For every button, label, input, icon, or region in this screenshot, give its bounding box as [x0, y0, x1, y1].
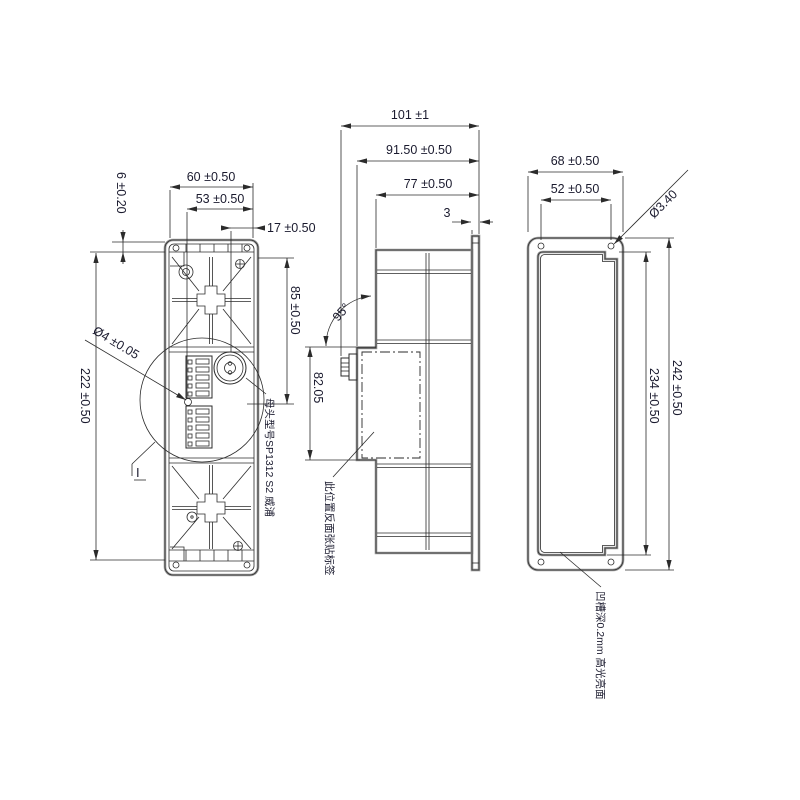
middle-view-dimensions: 101 ±1 91.50 ±0.50 77 ±0.50 3 95° 82.05 … [305, 108, 493, 576]
dim-68: 68 ±0.50 [551, 154, 600, 168]
corner-hole [538, 243, 544, 249]
corner-hole [608, 243, 614, 249]
terminal-block-lower [186, 406, 212, 448]
corner-hole [173, 245, 179, 251]
note-label-position: 此位置反面张贴标签 [323, 481, 336, 576]
dim-dia3-40: Ø3.40 [646, 187, 680, 221]
technical-drawing: 60 ±0.50 53 ±0.50 17 ±0.50 6 ±0.20 222 ±… [0, 0, 800, 800]
dim-91-50: 91.50 ±0.50 [386, 143, 452, 157]
left-view-dimensions: 60 ±0.50 53 ±0.50 17 ±0.50 6 ±0.20 222 ±… [78, 170, 316, 560]
corner-hole [173, 562, 179, 568]
middle-view [341, 236, 479, 570]
dim-242: 242 ±0.50 [670, 360, 684, 416]
dim-60: 60 ±0.50 [187, 170, 236, 184]
note-groove-depth: 凹槽深0.2mm 高光亮面 [594, 591, 607, 700]
right-view-outline [528, 238, 623, 570]
middle-view-outline [357, 250, 472, 553]
dim-85: 85 ±0.50 [288, 286, 302, 335]
rib-pattern-bottom [172, 465, 251, 549]
right-view-dimensions: 68 ±0.50 52 ±0.50 Ø3.40 242 ±0.50 234 ±0… [528, 154, 688, 700]
drawing-sheet: 60 ±0.50 53 ±0.50 17 ±0.50 6 ±0.20 222 ±… [0, 0, 800, 800]
dim-77: 77 ±0.50 [404, 177, 453, 191]
dim-17: 17 ±0.50 [267, 221, 316, 235]
dim-3: 3 [444, 206, 451, 220]
detail-circle [140, 338, 264, 462]
corner-hole [244, 245, 250, 251]
label-area-phantom-box [362, 352, 420, 458]
detail-label-i: I [136, 465, 140, 480]
circular-connector [214, 352, 246, 384]
dim-53: 53 ±0.50 [196, 192, 245, 206]
left-view [140, 240, 264, 575]
groove-outline [538, 252, 617, 555]
flange-edge [472, 236, 479, 570]
note-connector-model: 母头型号SP1312 S2 威浦 [263, 398, 276, 518]
connector-side-profile [341, 354, 357, 380]
angle-arc [326, 296, 371, 346]
leader-detail-i [132, 442, 155, 464]
dim-dia4: Ø4 ±0.05 [90, 324, 141, 362]
dim-52: 52 ±0.50 [551, 182, 600, 196]
leader-label-note [333, 432, 374, 477]
screw-boss [179, 265, 193, 279]
dim-6: 6 ±0.20 [114, 172, 128, 214]
leader-connector-note [246, 378, 266, 394]
dim-angle-95: 95° [330, 301, 353, 324]
dim-82-05: 82.05 [311, 372, 325, 403]
corner-hole [538, 559, 544, 565]
dim-222: 222 ±0.50 [78, 368, 92, 424]
right-view [528, 238, 623, 570]
dim-101: 101 ±1 [391, 108, 429, 122]
corner-hole [608, 559, 614, 565]
corner-hole [244, 562, 250, 568]
rib-pattern-top [172, 257, 251, 344]
dim-234: 234 ±0.50 [647, 368, 661, 424]
screw-boss [187, 512, 197, 522]
terminal-block-upper [186, 356, 212, 398]
